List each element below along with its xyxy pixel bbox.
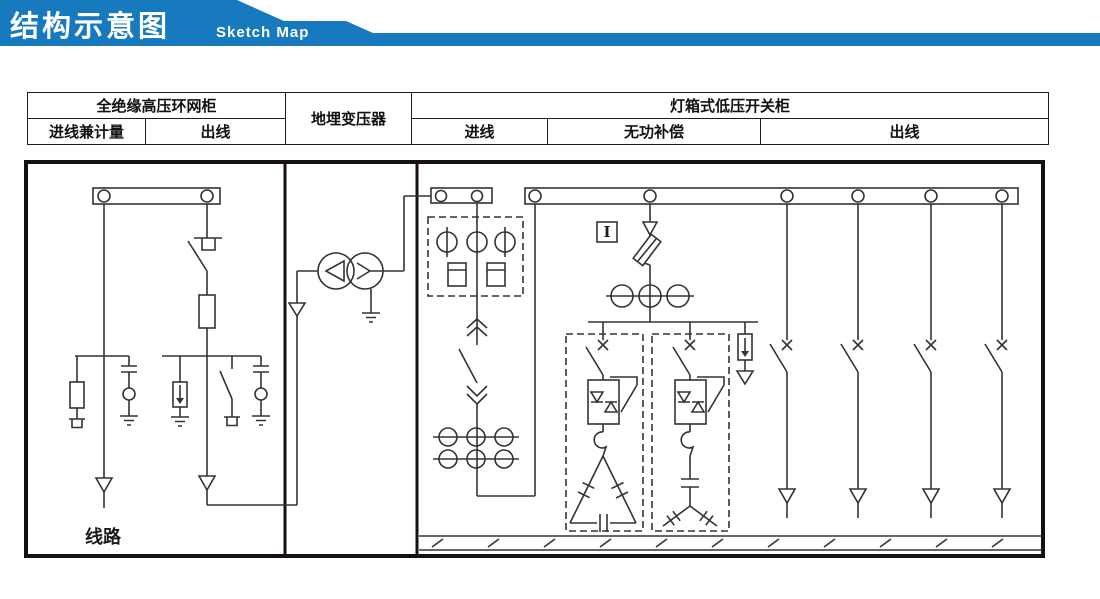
outgoing-feeder-3 (914, 204, 939, 518)
fuse-icon (70, 382, 84, 408)
current-indicator-label: I (603, 223, 610, 241)
hv-outgoing-feeder (162, 204, 297, 505)
cable-arrow-icon (289, 303, 305, 316)
outgoing-feeder-2 (841, 204, 866, 518)
reactive-compensation-section: I (566, 204, 758, 532)
line-label: 线路 (85, 526, 122, 547)
outgoing-feeder-4 (985, 204, 1010, 518)
delta-capacitor-bank (570, 456, 636, 523)
lv-incoming-section (428, 188, 535, 496)
cable-arrow-icon (737, 371, 753, 384)
star-capacitor-bank (681, 456, 699, 506)
single-line-diagram: 线路 (0, 0, 1100, 599)
lv-surge-arrester (737, 322, 753, 384)
wye-winding-icon (357, 263, 382, 279)
neutral-earth (362, 313, 380, 322)
energy-meter-icon (448, 263, 466, 286)
cable-arrow-icon (199, 476, 215, 490)
hv-incoming-metering-feeder: 线路 (69, 204, 138, 547)
energy-meter-icon (487, 263, 505, 286)
ct-bank (433, 428, 519, 468)
delta-winding-icon (326, 261, 344, 281)
hv-ring-main-unit-section: 线路 (69, 188, 297, 547)
fuse-icon (199, 295, 215, 328)
metering-unit (428, 217, 523, 296)
lv-outgoing-section (770, 204, 1010, 518)
tsc-branch-star (652, 322, 729, 531)
lv-main-busbar (525, 188, 1018, 204)
outgoing-feeder-1 (770, 204, 795, 518)
tsc-branch-delta (566, 322, 643, 532)
switch-contact-icon (194, 238, 222, 250)
transformer-section (289, 196, 431, 505)
drawout-circuit-breaker (459, 319, 487, 404)
switch-blade-icon (188, 241, 207, 271)
cable-arrow-icon (96, 478, 112, 492)
cable-arrow-icon (643, 222, 657, 235)
transformer-primary-winding (318, 253, 354, 289)
surge-arrester (171, 356, 189, 426)
earth-hatch-strip (419, 536, 1042, 550)
earthing-switch (220, 356, 240, 426)
